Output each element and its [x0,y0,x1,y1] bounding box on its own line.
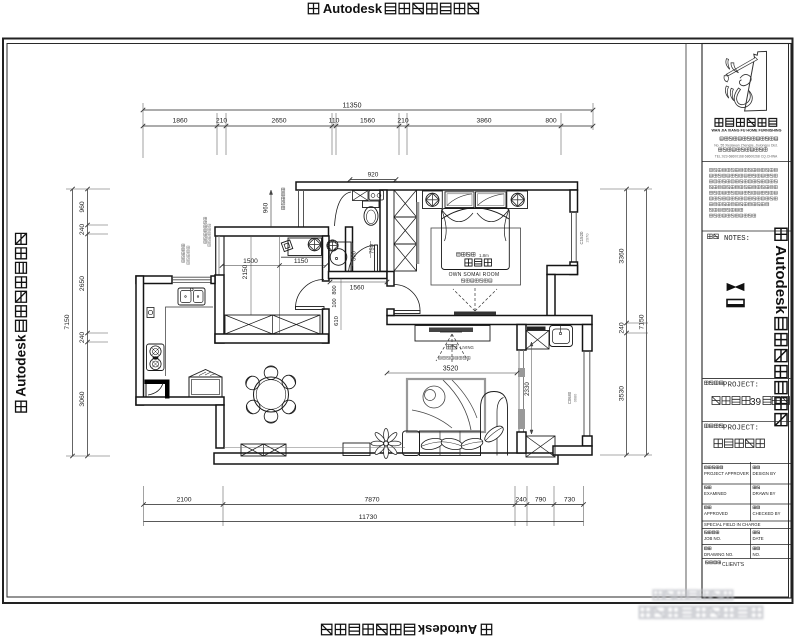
svg-text:1560: 1560 [350,285,365,292]
svg-text:3520: 3520 [443,366,459,373]
svg-text:800: 800 [352,251,358,261]
svg-text:3860: 3860 [476,118,491,125]
svg-text:240: 240 [619,322,626,334]
svg-text:C1520: C1520 [579,231,584,244]
svg-text:7150: 7150 [639,314,646,329]
svg-text:Autodesk: Autodesk [323,1,383,16]
svg-text:3060: 3060 [79,391,86,406]
svg-text:TEL:023-68600168 68600268 CQ.C: TEL:023-68600168 68600268 CQ.CHINA [715,155,778,159]
svg-text:7150: 7150 [64,314,71,329]
svg-text:CLIENT'S: CLIENT'S [722,562,745,568]
svg-text:790: 790 [535,497,547,504]
svg-text:0680: 0680 [574,394,578,402]
svg-text:1560: 1560 [360,118,375,125]
svg-text:3360: 3360 [619,248,626,263]
svg-text:100: 100 [332,298,338,307]
svg-text:NO.: NO. [753,552,761,557]
svg-text:960: 960 [263,202,270,213]
svg-text:JOB NO.: JOB NO. [704,536,721,541]
svg-text:Autodesk: Autodesk [417,622,477,637]
svg-text:920: 920 [368,172,379,179]
svg-text:C0680: C0680 [567,391,572,404]
svg-text:1150: 1150 [294,258,309,265]
svg-text:EXAMINED: EXAMINED [704,491,726,496]
svg-text:DRAWING NO.: DRAWING NO. [704,552,733,557]
svg-text:LIVING: LIVING [460,345,474,350]
svg-text:2650: 2650 [79,276,86,291]
svg-text:800: 800 [545,118,557,125]
svg-text:730: 730 [564,497,576,504]
svg-text:610: 610 [334,316,340,326]
svg-text:Autodesk: Autodesk [14,334,29,397]
svg-text:11730: 11730 [359,514,378,521]
svg-text:240: 240 [79,224,86,236]
svg-text:CHECKED BY: CHECKED BY [753,511,781,516]
svg-text:210: 210 [397,118,409,125]
svg-text:DRAWN BY: DRAWN BY [753,491,776,496]
svg-text:39: 39 [750,397,762,408]
svg-text:11350: 11350 [343,103,362,110]
svg-text:2100: 2100 [176,497,191,504]
svg-text:240: 240 [515,497,527,504]
svg-text:7870: 7870 [364,497,379,504]
svg-text:2650: 2650 [271,118,286,125]
svg-text:800: 800 [332,285,338,294]
svg-text:Autodesk: Autodesk [772,245,789,314]
svg-text:210: 210 [216,118,228,125]
svg-text:1860: 1860 [172,118,187,125]
svg-text:1500: 1500 [243,258,258,265]
svg-text:SPECIAL FIELD IN CHARGE: SPECIAL FIELD IN CHARGE [704,522,761,527]
svg-text:DATE: DATE [753,536,764,541]
svg-text:1.8m: 1.8m [479,253,489,258]
svg-text:2070: 2070 [585,233,590,243]
svg-text:240: 240 [79,332,86,344]
svg-text:PROJECT:: PROJECT: [723,382,759,390]
svg-text:NOTES:: NOTES: [724,235,750,243]
svg-text:OWN SOMAI ROOM: OWN SOMAI ROOM [449,272,500,278]
svg-text:DESIGN BY: DESIGN BY [753,471,777,476]
svg-text:WAN JIA XIANG FU HOME FURNISHI: WAN JIA XIANG FU HOME FURNISHING [712,128,782,132]
svg-text:3530: 3530 [619,386,626,401]
svg-text:750: 750 [370,244,376,254]
svg-text:110: 110 [329,118,340,125]
svg-text:PROJECT:: PROJECT: [723,425,759,433]
svg-text:960: 960 [79,201,86,213]
svg-text:2150: 2150 [242,264,249,279]
svg-text:No. 55 Xiejiawan Zhengjie, Jiu: No. 55 Xiejiawan Zhengjie, Jiulongpo Dis… [714,143,778,147]
svg-text:2330: 2330 [524,382,531,396]
svg-text:PROJECT APPROVER: PROJECT APPROVER [704,471,749,476]
svg-text:APPROVED: APPROVED [704,511,728,516]
